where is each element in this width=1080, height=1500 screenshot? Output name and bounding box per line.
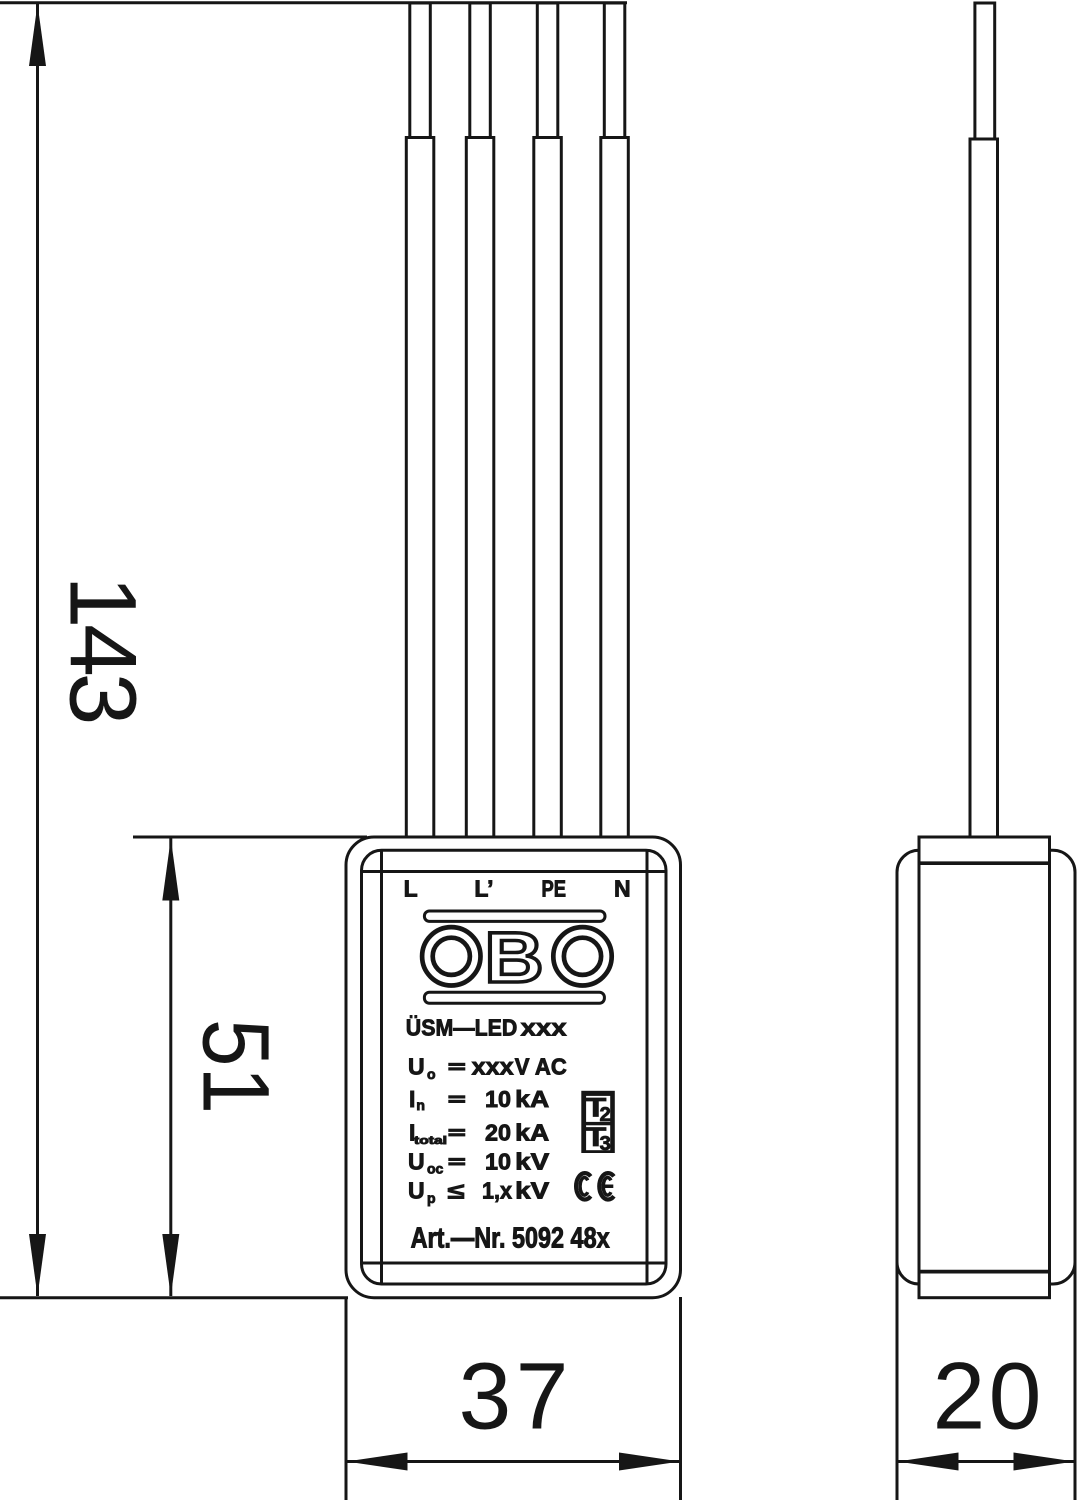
svg-text:U: U bbox=[408, 1054, 425, 1080]
svg-text:o: o bbox=[427, 1066, 436, 1082]
svg-text:1,x: 1,x bbox=[482, 1178, 512, 1204]
svg-text:10: 10 bbox=[485, 1149, 511, 1175]
svg-text:ÜSM—LED: ÜSM—LED bbox=[406, 1014, 518, 1040]
svg-text:p: p bbox=[427, 1190, 436, 1206]
svg-text:n: n bbox=[416, 1097, 425, 1113]
svg-text:kA: kA bbox=[515, 1119, 549, 1145]
svg-text:kA: kA bbox=[515, 1086, 549, 1112]
svg-text:20: 20 bbox=[485, 1119, 511, 1145]
svg-text:L’: L’ bbox=[474, 875, 493, 901]
svg-text:51: 51 bbox=[182, 1019, 288, 1114]
svg-text:3: 3 bbox=[600, 1132, 611, 1155]
svg-text:Art.—Nr. 5092 48x: Art.—Nr. 5092 48x bbox=[411, 1223, 610, 1255]
svg-text:total: total bbox=[414, 1135, 447, 1147]
svg-text:L: L bbox=[404, 875, 418, 901]
svg-text:V AC: V AC bbox=[515, 1054, 567, 1080]
svg-text:kV: kV bbox=[515, 1149, 550, 1175]
svg-text:xxx: xxx bbox=[472, 1054, 514, 1080]
svg-text:PE: PE bbox=[542, 875, 567, 901]
svg-text:U: U bbox=[408, 1149, 425, 1175]
svg-text:10: 10 bbox=[485, 1086, 511, 1112]
svg-text:xxx: xxx bbox=[521, 1014, 567, 1040]
svg-text:I: I bbox=[409, 1086, 415, 1112]
svg-text:kV: kV bbox=[515, 1178, 550, 1204]
svg-text:N: N bbox=[614, 875, 631, 901]
svg-text:oc: oc bbox=[427, 1161, 444, 1177]
svg-text:B: B bbox=[485, 919, 544, 998]
svg-text:≤: ≤ bbox=[448, 1179, 465, 1204]
svg-text:U: U bbox=[408, 1178, 425, 1204]
svg-text:143: 143 bbox=[50, 576, 156, 726]
